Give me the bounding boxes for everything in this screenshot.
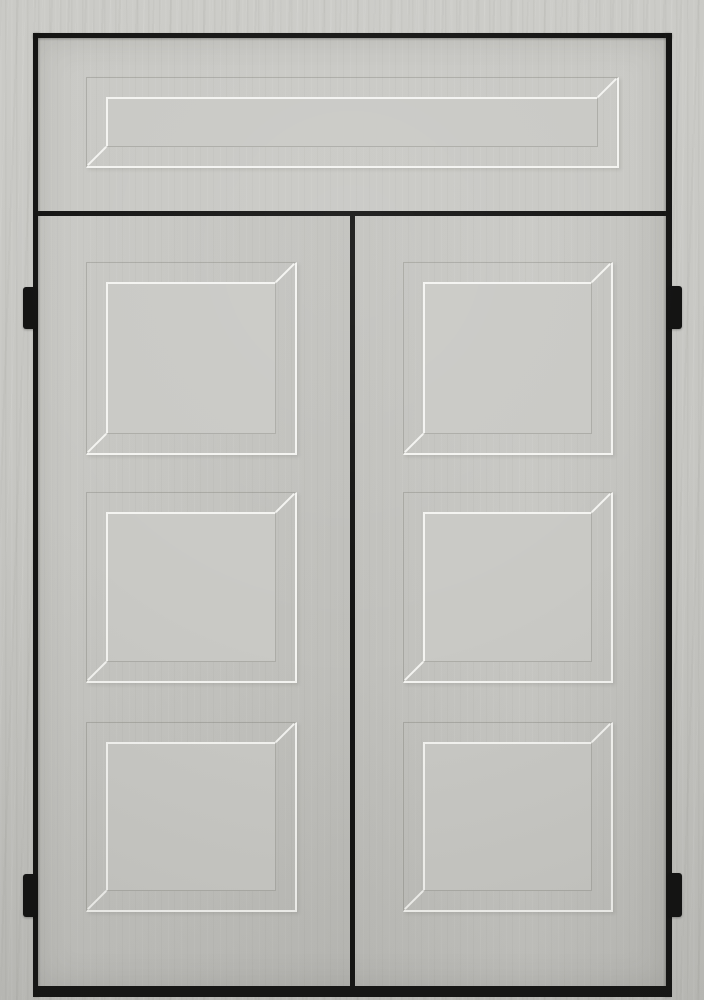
panel-center	[106, 282, 276, 434]
panel-center	[423, 512, 592, 662]
frame-right	[666, 33, 672, 997]
panel-center	[423, 282, 592, 434]
panel-center	[106, 512, 276, 662]
panel-center	[106, 742, 276, 891]
double-door-product-image	[0, 0, 704, 1000]
recessed-panel	[86, 492, 297, 683]
panel-center	[423, 742, 592, 891]
hinge-right-top	[668, 286, 682, 329]
right-door-leaf	[355, 216, 666, 986]
recessed-panel	[86, 262, 297, 455]
recessed-panel	[403, 262, 613, 455]
frame-bottom-threshold	[33, 986, 672, 997]
recessed-panel	[86, 722, 297, 912]
recessed-panel	[403, 492, 613, 683]
left-door-leaf	[38, 216, 350, 986]
hinge-right-bottom	[668, 873, 682, 917]
transom-recessed-panel	[86, 77, 619, 168]
transom	[38, 38, 666, 211]
recessed-panel	[403, 722, 613, 912]
hinge-left-bottom	[23, 874, 37, 917]
door-unit	[38, 38, 666, 986]
transom-panel-center	[106, 97, 598, 147]
hinge-left-top	[23, 287, 37, 329]
frame-left	[33, 33, 38, 997]
frame-top	[33, 33, 672, 38]
